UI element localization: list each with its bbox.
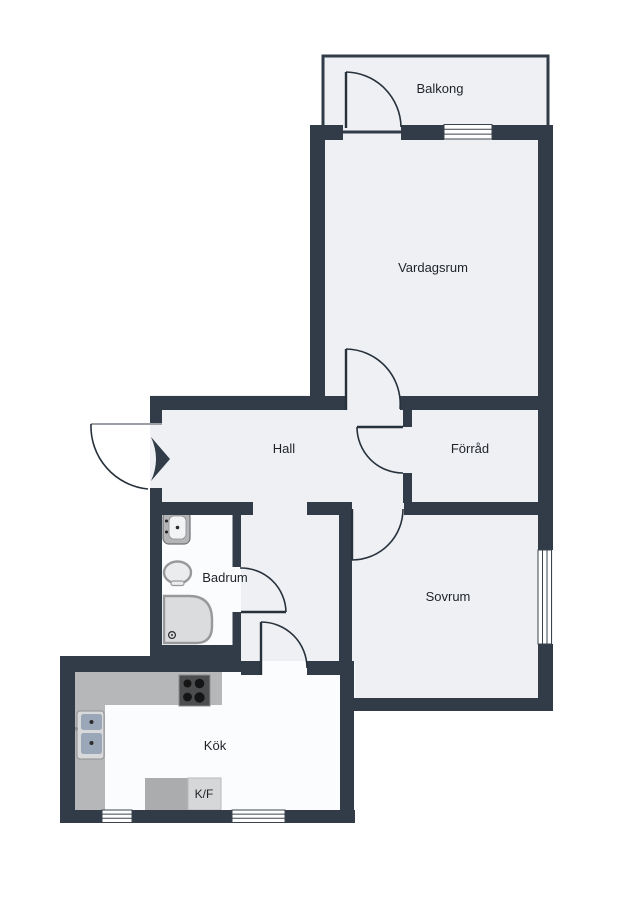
balcony-window bbox=[444, 125, 492, 140]
wall bbox=[150, 488, 162, 672]
wall bbox=[132, 810, 232, 823]
wall bbox=[150, 502, 253, 515]
wall bbox=[150, 396, 162, 425]
wall bbox=[403, 410, 412, 427]
wall bbox=[150, 645, 241, 672]
wall bbox=[233, 515, 242, 567]
wall bbox=[241, 661, 262, 675]
floor-plan: Balkong Vardagsrum Hall Förråd Badrum So… bbox=[0, 0, 636, 900]
wall bbox=[401, 125, 444, 140]
wall bbox=[60, 656, 150, 672]
wall bbox=[400, 396, 553, 410]
wall bbox=[403, 473, 412, 503]
fridge-freezer-label: K/F bbox=[195, 787, 214, 801]
kok-window-small bbox=[102, 810, 132, 823]
room-label-kok: Kök bbox=[204, 738, 227, 753]
wall bbox=[310, 125, 325, 410]
wall bbox=[285, 810, 355, 823]
bathroom-sink-icon bbox=[163, 511, 190, 544]
room-hall-forrad-floor bbox=[150, 395, 553, 515]
wall bbox=[404, 502, 553, 515]
room-label-vardagsrum: Vardagsrum bbox=[398, 260, 468, 275]
shower-icon bbox=[164, 596, 212, 643]
kok-window-large bbox=[232, 810, 285, 823]
wall bbox=[60, 656, 75, 823]
room-label-sovrum: Sovrum bbox=[426, 589, 471, 604]
room-label-hall: Hall bbox=[273, 441, 296, 456]
appliance-dark-block bbox=[145, 778, 188, 810]
room-label-badrum: Badrum bbox=[202, 570, 248, 585]
room-label-balkong: Balkong bbox=[417, 81, 464, 96]
floor-plan-page: Balkong Vardagsrum Hall Förråd Badrum So… bbox=[0, 0, 636, 900]
wall bbox=[339, 502, 352, 675]
wall bbox=[60, 810, 102, 823]
wall bbox=[150, 396, 346, 410]
stove-icon bbox=[179, 675, 210, 706]
sovrum-window bbox=[538, 550, 552, 644]
wall bbox=[538, 125, 553, 550]
wall bbox=[307, 661, 341, 675]
room-label-forrad: Förråd bbox=[451, 441, 489, 456]
wall bbox=[340, 661, 354, 823]
wall bbox=[344, 698, 553, 711]
